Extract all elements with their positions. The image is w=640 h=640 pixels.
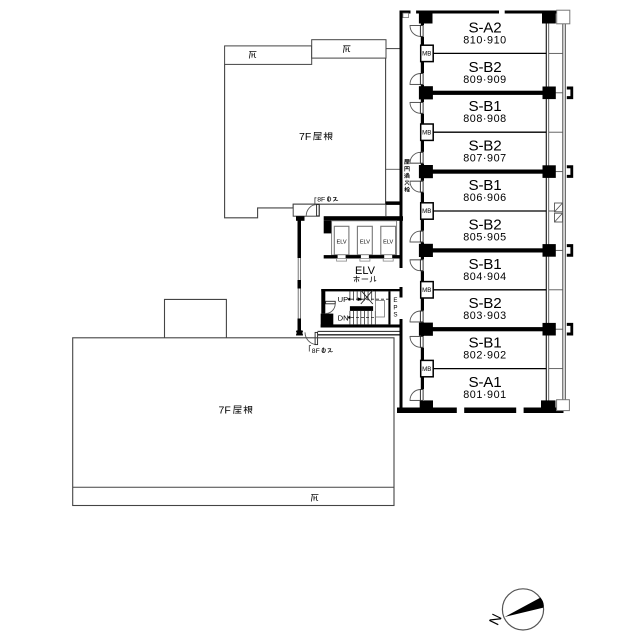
svg-text:807·907: 807·907 <box>463 153 506 165</box>
svg-text:809·909: 809·909 <box>463 74 506 86</box>
svg-text:MB: MB <box>422 366 431 373</box>
svg-text:MB: MB <box>422 51 431 58</box>
svg-text:808·908: 808·908 <box>463 113 506 125</box>
svg-text:UP: UP <box>338 295 349 304</box>
svg-text:806·906: 806·906 <box>463 192 506 204</box>
svg-text:804·904: 804·904 <box>463 271 506 283</box>
svg-text:8F: 8F <box>317 197 325 204</box>
svg-text:805·905: 805·905 <box>463 231 506 243</box>
svg-text:8F: 8F <box>312 348 320 355</box>
svg-text:801·901: 801·901 <box>463 389 506 401</box>
svg-text:ELV: ELV <box>355 265 376 277</box>
svg-text:802·902: 802·902 <box>463 350 506 362</box>
svg-text:7F: 7F <box>299 131 311 143</box>
svg-text:DN: DN <box>338 313 349 322</box>
svg-text:810·910: 810·910 <box>463 34 506 46</box>
svg-text:7F: 7F <box>219 405 231 417</box>
svg-text:803·903: 803·903 <box>463 310 506 322</box>
svg-text:E: E <box>393 297 397 304</box>
svg-text:ELV: ELV <box>337 240 347 246</box>
svg-text:MB: MB <box>422 208 431 215</box>
svg-text:MB: MB <box>422 129 431 136</box>
svg-text:P: P <box>393 304 397 311</box>
svg-text:S: S <box>393 312 397 319</box>
svg-text:ELV: ELV <box>360 240 370 246</box>
svg-text:MB: MB <box>422 287 431 294</box>
svg-text:ELV: ELV <box>383 240 393 246</box>
